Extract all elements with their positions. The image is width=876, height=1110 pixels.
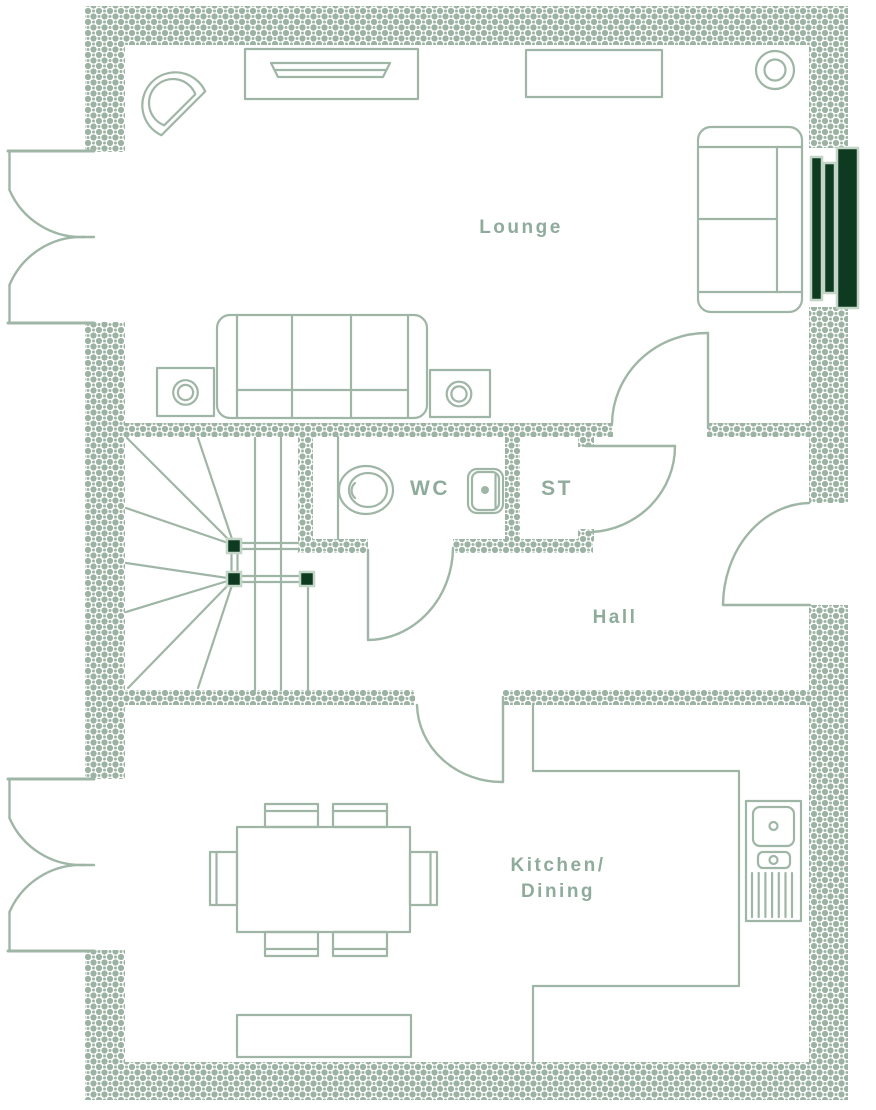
- winder-staircase: [126, 438, 314, 690]
- wall-wc-bottom-right: [453, 539, 593, 553]
- room-label-store: ST: [541, 476, 573, 502]
- lounge-hall-door: [612, 333, 708, 428]
- dining-chair-bottom-left: [265, 932, 318, 956]
- side-table-lamp-right: [430, 370, 490, 417]
- lounge-furniture: [129, 49, 802, 418]
- room-label-lounge: Lounge: [479, 215, 563, 241]
- armchair: [129, 59, 207, 137]
- wall-bottom: [85, 1062, 848, 1100]
- feature-window-panels: [811, 148, 858, 308]
- floor-lamp: [756, 51, 794, 89]
- dining-table: [237, 827, 410, 932]
- wall-left-middle: [85, 322, 125, 779]
- feature-panel: [837, 148, 858, 308]
- kitchen-dining-furniture: [210, 705, 801, 1062]
- dining-chair-top-left: [265, 804, 318, 827]
- newel-post: [227, 572, 241, 586]
- side-table-lamp-left: [157, 368, 214, 416]
- two-seat-sofa: [698, 127, 802, 312]
- dining-chair-left: [210, 852, 237, 905]
- dining-chair-right: [410, 852, 437, 905]
- floor-plan-drawing: [0, 0, 876, 1110]
- dining-chair-bottom-right: [333, 932, 387, 956]
- wall-hall-kitchen: [503, 690, 809, 705]
- floor-plan: Lounge WC ST Hall Kitchen/ Dining: [0, 0, 876, 1110]
- newel-post: [227, 539, 241, 553]
- feature-panel: [811, 157, 822, 300]
- basin: [468, 469, 503, 513]
- drainer-lines: [752, 873, 792, 917]
- kitchen-french-doors: [8, 779, 94, 951]
- front-door: [723, 503, 810, 605]
- tv-unit: [245, 49, 418, 99]
- lounge-french-doors: [8, 151, 94, 323]
- three-seat-sofa: [217, 315, 427, 418]
- wall-left-lower: [85, 950, 125, 1064]
- kitchen-door: [417, 697, 503, 782]
- wall-lounge-hall-right: [707, 423, 809, 437]
- wall-stairs-wc: [298, 437, 313, 545]
- room-label-wc: WC: [410, 476, 450, 502]
- wall-lounge-hall-left: [125, 423, 613, 437]
- wc-door: [368, 548, 453, 640]
- newel-post: [300, 572, 314, 586]
- toilet: [339, 466, 393, 514]
- wall-wc-st: [505, 437, 520, 545]
- kitchen-label-line2: Dining: [521, 881, 595, 902]
- wall-right-upper: [809, 6, 848, 148]
- bench: [237, 1015, 411, 1057]
- feature-panel: [824, 163, 835, 293]
- wall-right-lower: [809, 605, 848, 1062]
- sideboard: [526, 50, 662, 97]
- wall-stairs-kitchen: [85, 690, 415, 705]
- stair-treads: [126, 438, 308, 690]
- dining-set: [210, 804, 437, 956]
- walls: [85, 6, 848, 1100]
- wall-top: [85, 6, 848, 45]
- wall-left-upper: [85, 6, 125, 152]
- sink-unit: [746, 801, 801, 921]
- wall-right-middle: [809, 307, 848, 503]
- dining-chair-top-right: [333, 804, 387, 827]
- kitchen-label-line1: Kitchen/: [511, 855, 606, 876]
- room-label-hall: Hall: [593, 605, 638, 631]
- room-label-kitchen-dining: Kitchen/ Dining: [511, 853, 606, 905]
- wall-wc-bottom-left: [298, 539, 368, 553]
- store-door: [585, 446, 675, 532]
